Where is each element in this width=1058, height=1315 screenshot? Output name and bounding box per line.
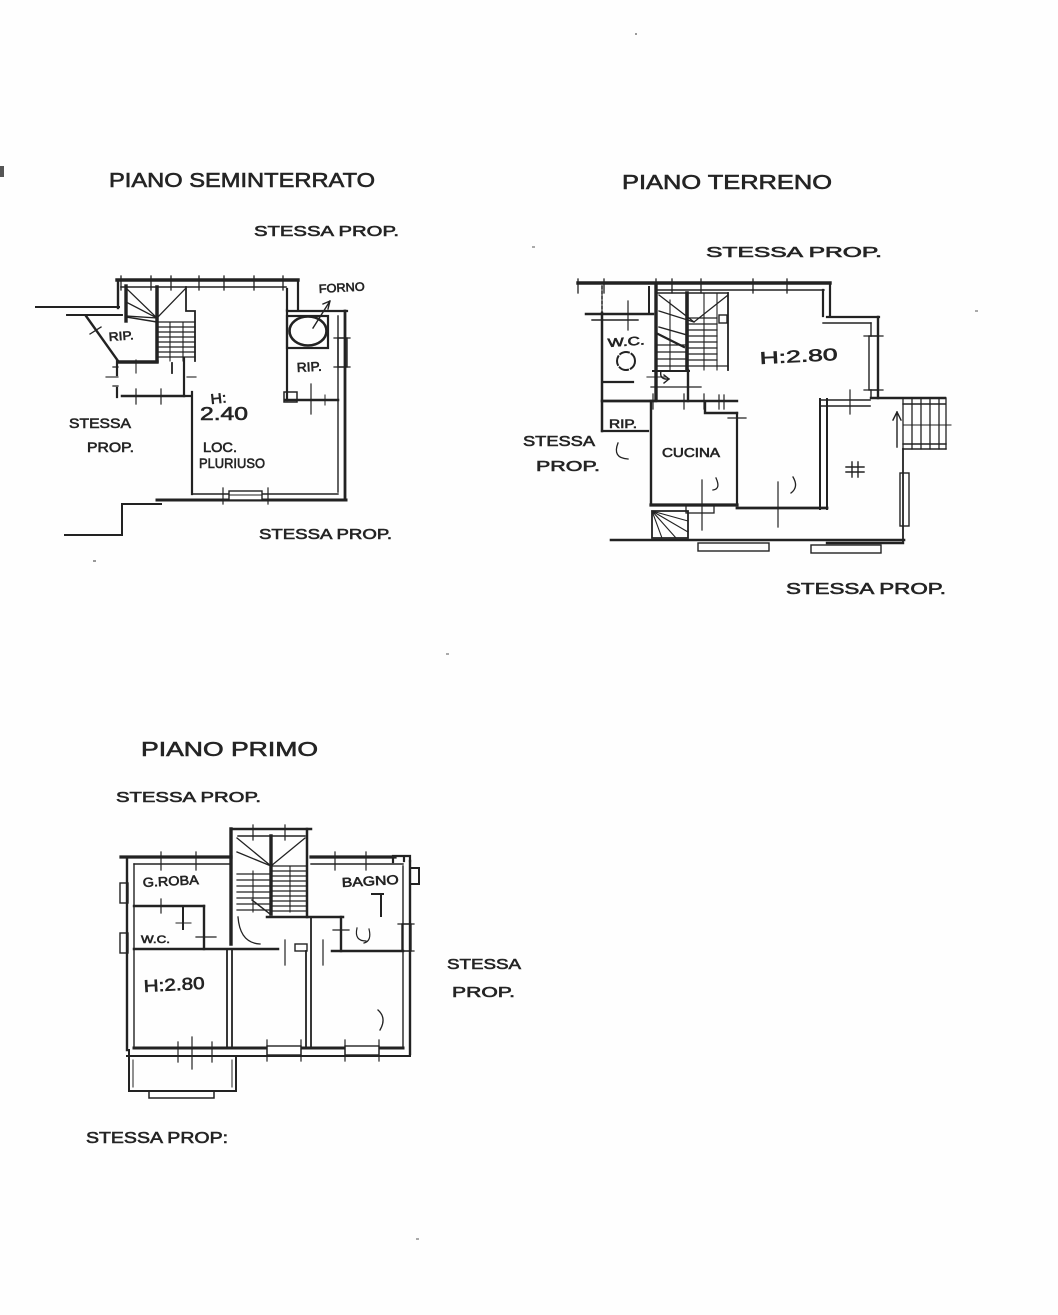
svg-text:STESSA: STESSA (69, 415, 132, 431)
svg-text:STESSA PROP.: STESSA PROP. (259, 526, 392, 543)
svg-text:STESSA: STESSA (447, 956, 521, 973)
svg-text:PROP.: PROP. (87, 439, 134, 455)
svg-text:RIP.: RIP. (609, 417, 637, 431)
svg-text:STESSA PROP.: STESSA PROP. (706, 244, 882, 261)
svg-text:PLURIUSO: PLURIUSO (199, 455, 265, 471)
svg-text:W.C.: W.C. (141, 934, 170, 946)
svg-text:LOC.: LOC. (203, 439, 237, 455)
svg-text:PIANO TERRENO: PIANO TERRENO (622, 172, 832, 194)
svg-text:PROP.: PROP. (452, 984, 515, 1001)
svg-text:H:2.80: H:2.80 (759, 345, 838, 368)
svg-text:STESSA PROP:: STESSA PROP: (86, 1130, 228, 1147)
svg-text:PIANO SEMINTERRATO: PIANO SEMINTERRATO (109, 170, 375, 192)
svg-text:FORNO: FORNO (318, 280, 365, 296)
svg-text:STESSA PROP.: STESSA PROP. (254, 223, 399, 240)
svg-text:STESSA PROP.: STESSA PROP. (116, 789, 261, 806)
svg-text:2.40: 2.40 (200, 404, 248, 424)
svg-text:STESSA PROP.: STESSA PROP. (786, 581, 946, 598)
svg-text:RIP.: RIP. (296, 359, 322, 375)
svg-text:PIANO PRIMO: PIANO PRIMO (141, 739, 318, 761)
svg-text:BAGNO: BAGNO (341, 872, 399, 890)
svg-text:G.ROBA: G.ROBA (142, 872, 199, 890)
svg-text:PROP.: PROP. (536, 458, 600, 475)
svg-text:H:2.80: H:2.80 (143, 974, 205, 996)
svg-text:STESSA: STESSA (523, 433, 595, 450)
svg-text:W.C.: W.C. (607, 333, 645, 350)
svg-text:CUCINA: CUCINA (662, 445, 720, 460)
svg-text:RIP.: RIP. (108, 328, 134, 344)
